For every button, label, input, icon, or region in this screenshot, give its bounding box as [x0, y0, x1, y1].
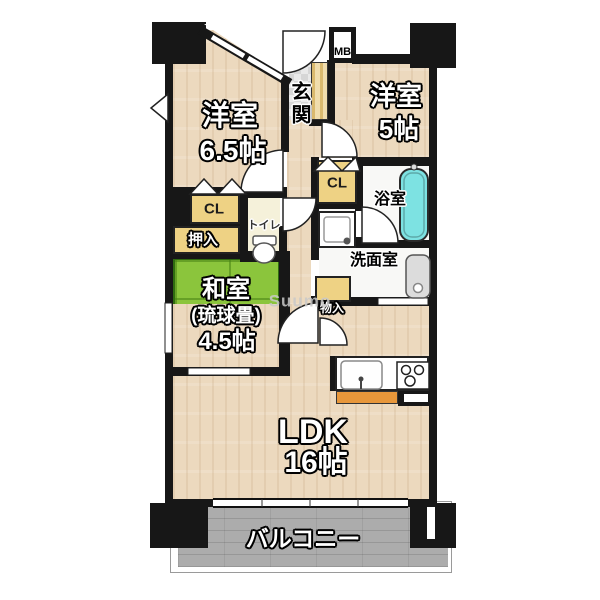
western1-size-label: 6.5帖	[200, 137, 267, 165]
entrance-door-swing-icon	[283, 31, 325, 73]
washitsu-bottom-window	[188, 368, 250, 375]
ldk-size-label: 16帖	[284, 448, 347, 478]
folding-door-icon	[190, 179, 246, 194]
closet-cl2-label: CL	[327, 176, 347, 191]
closet-cl1-label: CL	[204, 202, 224, 217]
western2-door-swing-icon	[322, 122, 357, 157]
washitsu-left-window	[165, 303, 172, 353]
entrance-label: 玄関	[289, 81, 309, 127]
bathroom-label: 浴室	[374, 192, 406, 208]
watermark: Suumo	[269, 293, 332, 310]
western1-room-label: 洋室	[202, 102, 258, 130]
folding-door-icon	[314, 157, 360, 171]
storage-door-swing-icon	[320, 318, 347, 345]
toilet-door-swing-icon	[283, 198, 316, 231]
bath-door-swing-icon	[362, 207, 398, 243]
toilet-label: トイレ	[248, 221, 281, 232]
toilet-bowl-icon	[253, 243, 275, 263]
western2-size-label: 5帖	[379, 116, 419, 142]
western2-room-label: 洋室	[370, 83, 422, 109]
japanese-room-label: 和室	[202, 278, 250, 302]
japanese-room-sub-label: (琉球畳)	[191, 307, 261, 326]
drain-icon	[344, 238, 351, 245]
japanese-room-size-label: 4.5帖	[198, 330, 255, 354]
vanity-drain-icon	[414, 284, 423, 293]
washroom-window	[378, 298, 428, 305]
floor-plan: MB	[0, 0, 600, 600]
kitchen-faucet-head	[359, 377, 364, 382]
bay-marker-icon	[151, 94, 168, 122]
washroom-label: 洗面室	[350, 253, 398, 269]
balcony-label: バルコニー	[246, 528, 361, 551]
oshiire-label: 押入	[188, 233, 218, 248]
ldk-label: LDK	[278, 415, 348, 449]
bath-faucet-icon	[411, 164, 417, 170]
